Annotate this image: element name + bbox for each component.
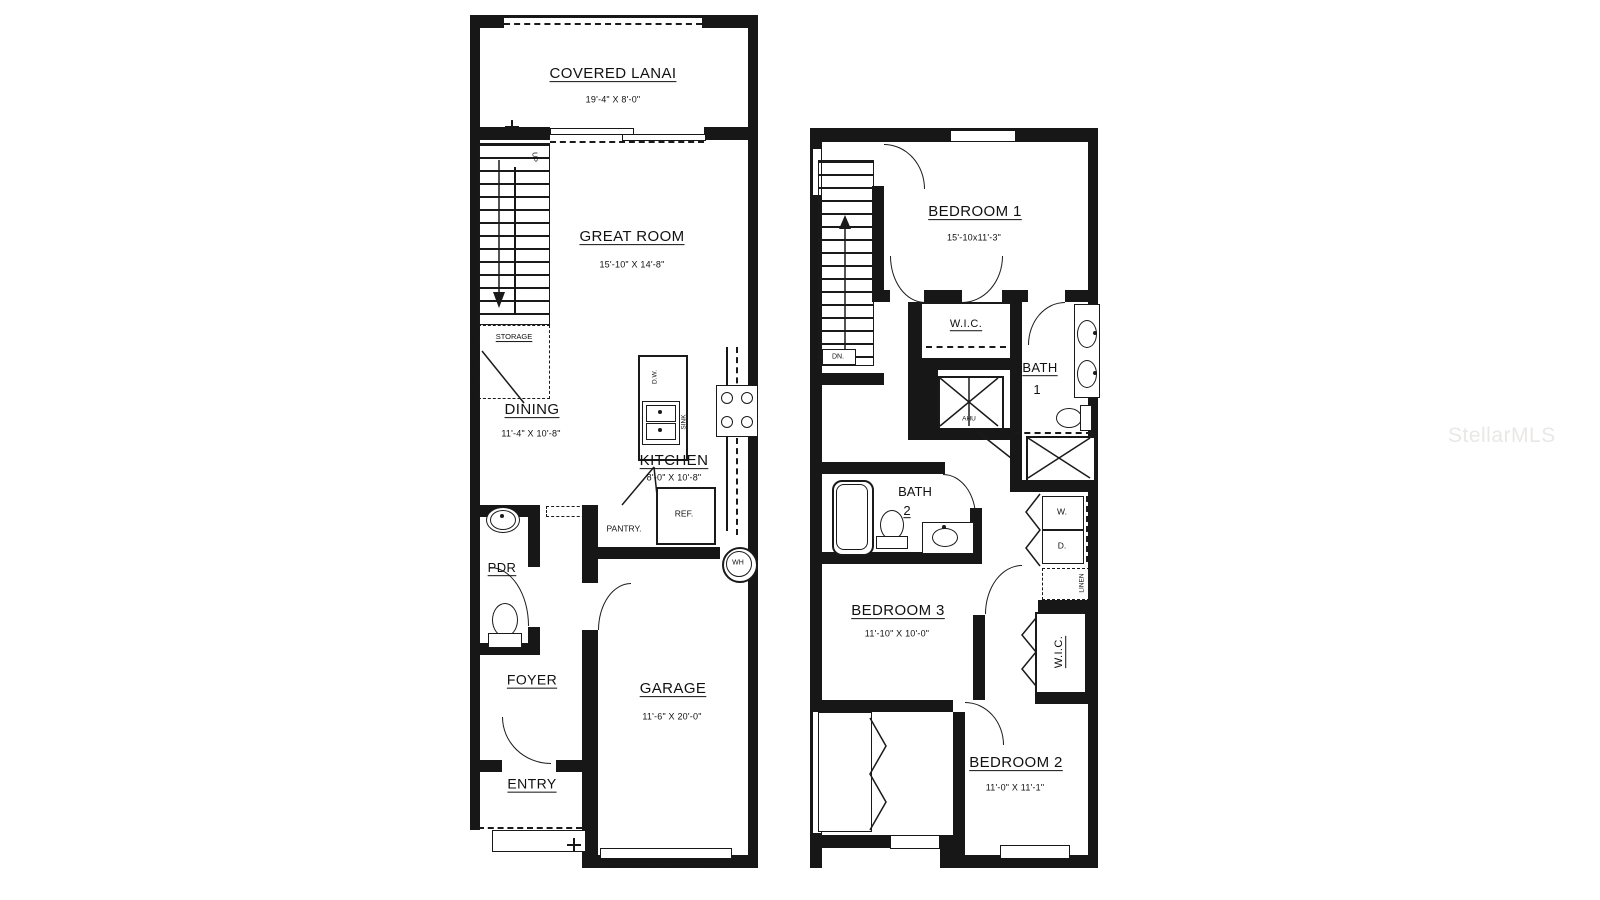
faucet-icon xyxy=(500,514,504,518)
sink-drain xyxy=(658,410,662,414)
window xyxy=(890,835,940,849)
bifold-door-icon xyxy=(1024,494,1042,566)
room-dims-bedroom1: 15'-10x11'-3" xyxy=(947,233,1001,242)
door-arc xyxy=(965,702,1004,745)
dryer-label: D. xyxy=(1058,542,1067,551)
door-arc xyxy=(884,144,925,189)
room-dims-great-room: 15'-10" X 14'-8" xyxy=(599,260,664,269)
sink-label: SINK xyxy=(682,414,689,429)
bath2-tub-inner xyxy=(836,484,868,550)
room-label-kitchen: KITCHEN xyxy=(640,453,709,469)
door-arc xyxy=(502,717,551,764)
door-opening xyxy=(1028,290,1065,302)
wall xyxy=(872,186,884,302)
watermark: StellarMLS xyxy=(1448,424,1556,448)
bedroom3-closet xyxy=(818,712,872,832)
wall xyxy=(810,700,953,712)
room-dims-bedroom2: 11'-0" X 11'-1" xyxy=(986,783,1045,792)
stair-direction-arrow-icon xyxy=(490,158,508,310)
shower-x-icon xyxy=(1026,436,1092,480)
stair-dn-label: DN. xyxy=(832,353,844,360)
cross-marker xyxy=(504,119,520,135)
wall xyxy=(598,547,720,559)
screen-opening xyxy=(504,23,702,25)
room-number-bath2: 2 xyxy=(903,504,910,518)
storage-label: STORAGE xyxy=(496,333,533,341)
door-track xyxy=(550,141,704,143)
room-dims-bedroom3: 11'-10" X 10'-0" xyxy=(865,629,929,638)
wall xyxy=(1088,128,1098,868)
room-label-great-room: GREAT ROOM xyxy=(579,229,684,245)
room-label-bedroom3: BEDROOM 3 xyxy=(851,603,945,619)
porch-line xyxy=(478,827,582,829)
wall xyxy=(748,15,758,868)
closet-rod xyxy=(926,346,1006,348)
pdr-sink-basin xyxy=(490,510,516,530)
pdr-toilet-bowl xyxy=(492,603,518,637)
pdr-toilet-tank xyxy=(488,633,522,648)
room-dims-kitchen: 8'-0" X 10'-8" xyxy=(647,473,702,482)
faucet-icon xyxy=(942,525,946,529)
window xyxy=(950,130,1016,142)
stair-direction-arrow-icon xyxy=(837,213,853,361)
faucet-icon xyxy=(1093,371,1097,375)
room-label-garage: GARAGE xyxy=(640,681,707,697)
wall xyxy=(470,760,502,772)
wall xyxy=(908,370,938,440)
burner-icon xyxy=(741,416,753,428)
wall xyxy=(470,15,504,28)
cross-marker xyxy=(566,837,582,853)
ahu-label: AHU xyxy=(962,417,976,424)
door-arc xyxy=(598,583,631,630)
wall xyxy=(582,505,598,583)
wall xyxy=(1035,692,1098,704)
faucet-icon xyxy=(1093,331,1097,335)
wall xyxy=(1085,612,1098,692)
bath2-toilet-tank xyxy=(876,536,908,549)
room-label-bath2: BATH xyxy=(898,485,932,499)
door-arc xyxy=(985,565,1022,614)
washer-label: W. xyxy=(1057,508,1067,517)
storage-door-line xyxy=(478,345,530,409)
bifold-door-icon xyxy=(868,718,888,830)
water-heater-label: WH xyxy=(732,559,744,566)
refrigerator-label: REF. xyxy=(675,510,693,519)
second-floor-plan: BEDROOM 1 15'-10x11'-3" W.I.C. BATH 1 AH… xyxy=(810,128,1100,868)
wall xyxy=(953,712,965,855)
accordion-door-icon xyxy=(1020,618,1038,688)
room-number-bath1: 1 xyxy=(1033,383,1040,397)
room-label-bedroom2: BEDROOM 2 xyxy=(969,755,1063,771)
garage-door xyxy=(600,848,732,859)
room-label-foyer: FOYER xyxy=(507,673,557,688)
stair-up-label: UP xyxy=(530,152,537,162)
bath2-sink xyxy=(932,528,958,547)
wall xyxy=(1010,302,1022,480)
door-arc xyxy=(1028,302,1065,345)
wall xyxy=(940,835,953,868)
upper-cabinet-line xyxy=(736,347,738,535)
window xyxy=(1000,845,1070,859)
floor-plan-page: { "watermark": "StellarMLS", "floor1": {… xyxy=(0,0,1600,900)
burner-icon xyxy=(721,416,733,428)
wall xyxy=(810,462,945,474)
room-label-bedroom1: BEDROOM 1 xyxy=(928,204,1022,220)
room-dims-covered-lanai: 19'-4" X 8'-0" xyxy=(586,95,641,104)
wall xyxy=(1010,480,1098,492)
pantry-label: PANTRY. xyxy=(607,525,642,534)
wall xyxy=(920,358,1012,370)
counter-edge xyxy=(726,347,728,387)
room-dims-garage: 11'-6" X 20'-0" xyxy=(642,712,701,721)
burner-icon xyxy=(741,392,753,404)
bath1-toilet-bowl xyxy=(1056,408,1082,428)
wall xyxy=(973,615,985,700)
first-floor-plan: COVERED LANAI 19'-4" X 8'-0" GREAT ROOM … xyxy=(470,15,760,870)
wd-door-line xyxy=(1086,496,1088,562)
wic2-label: W.I.C. xyxy=(1054,636,1066,668)
walk-in-closet-1 xyxy=(920,302,1016,362)
wall xyxy=(810,373,884,385)
wic1-label: W.I.C. xyxy=(950,319,982,331)
sliding-door xyxy=(622,134,706,141)
stair-rail xyxy=(514,167,516,315)
wall xyxy=(1038,600,1098,612)
wall xyxy=(556,760,582,772)
shower-glass xyxy=(1014,432,1092,434)
burner-icon xyxy=(721,392,733,404)
wall xyxy=(704,127,758,140)
room-label-pdr: PDR xyxy=(488,561,517,575)
wall xyxy=(702,15,758,28)
room-label-dining: DINING xyxy=(505,402,560,418)
bath1-toilet-tank xyxy=(1080,405,1092,431)
room-label-entry: ENTRY xyxy=(507,777,556,792)
room-label-bath1: BATH xyxy=(1022,361,1057,375)
linen-label: LINEN xyxy=(1080,573,1087,592)
wall xyxy=(528,505,540,567)
dishwasher-label: D.W. xyxy=(653,370,660,384)
room-dims-dining: 11'-4" X 10'-8" xyxy=(501,429,560,438)
room-label-covered-lanai: COVERED LANAI xyxy=(550,66,677,82)
wall xyxy=(504,15,702,18)
counter-edge xyxy=(726,433,728,531)
garage-door-track xyxy=(600,863,730,865)
sink-drain xyxy=(658,428,662,432)
